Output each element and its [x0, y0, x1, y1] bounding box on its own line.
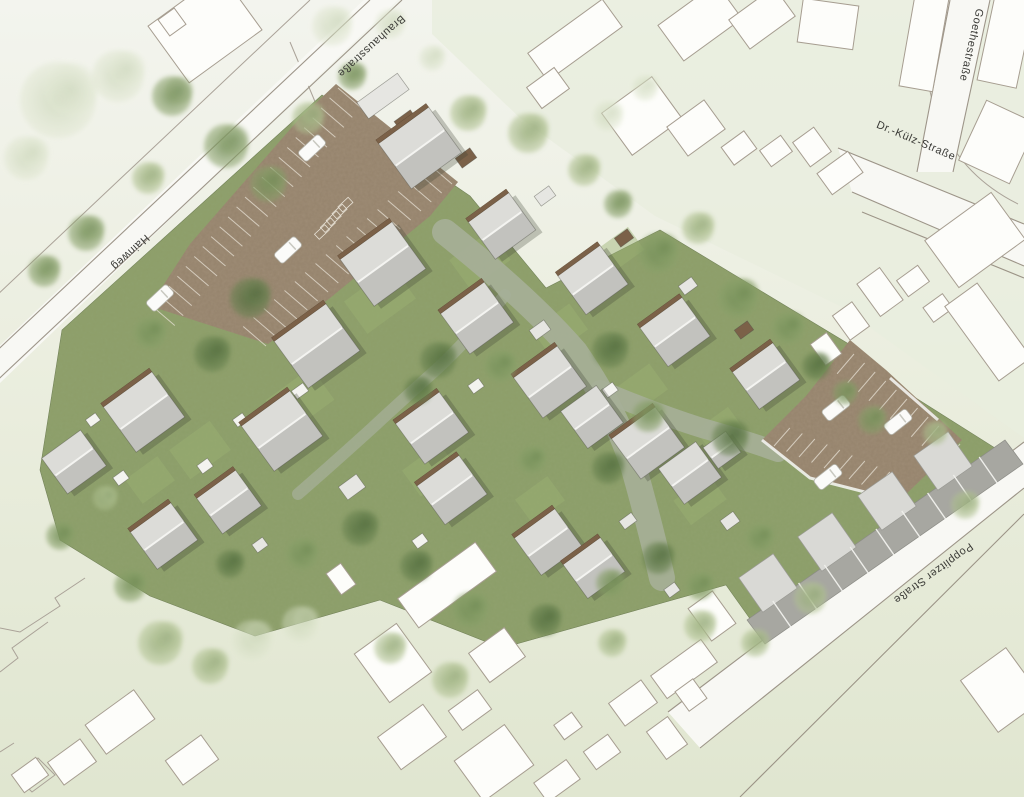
tree-canopy — [494, 350, 516, 372]
tree-canopy — [38, 255, 60, 277]
tree-canopy — [354, 510, 379, 535]
tree-canopy — [142, 162, 164, 184]
tree-canopy — [640, 75, 658, 93]
tree-canopy — [218, 124, 249, 155]
tree-canopy — [539, 604, 561, 626]
tree-canopy — [604, 332, 629, 357]
tree-canopy — [165, 76, 193, 104]
tree-canopy — [724, 420, 749, 445]
tree-canopy — [931, 421, 948, 438]
tree-canopy — [692, 212, 714, 234]
tree-canopy — [605, 569, 625, 589]
tree-canopy — [245, 620, 273, 648]
tree-canopy — [731, 278, 759, 306]
tree-canopy — [294, 606, 319, 631]
tree-canopy — [782, 312, 804, 334]
tree-canopy — [602, 452, 624, 474]
tree-canopy — [607, 629, 627, 649]
tree-canopy — [243, 278, 271, 306]
tree-canopy — [603, 101, 624, 122]
tree-canopy — [578, 154, 600, 176]
tree-canopy — [695, 572, 715, 592]
tree-canopy — [18, 136, 49, 167]
tree-canopy — [652, 542, 674, 564]
site-plan-canvas — [0, 0, 1024, 797]
tree-canopy — [410, 550, 432, 572]
tree-canopy — [206, 336, 231, 361]
tree-canopy — [867, 406, 887, 426]
tree-canopy — [755, 524, 775, 544]
tree-canopy — [527, 446, 547, 466]
tree-canopy — [444, 662, 469, 687]
tree-canopy — [296, 538, 318, 560]
tree-canopy — [841, 381, 858, 398]
tree-canopy — [960, 491, 980, 511]
tree-canopy — [432, 342, 457, 367]
tree-canopy — [204, 648, 229, 673]
tree-canopy — [750, 629, 770, 649]
tree-canopy — [109, 51, 145, 87]
tree-canopy — [804, 582, 826, 604]
tree-canopy — [225, 550, 245, 570]
tree-canopy — [325, 6, 353, 34]
tree-canopy — [152, 621, 183, 652]
tree-canopy — [302, 102, 324, 124]
tree-canopy — [144, 317, 166, 339]
tree-canopy — [427, 45, 445, 63]
tree-canopy — [521, 113, 549, 141]
tree-canopy — [613, 190, 633, 210]
tree-canopy — [45, 63, 98, 116]
tree-canopy — [55, 522, 75, 542]
tree-canopy — [642, 400, 664, 422]
tree-canopy — [651, 233, 679, 261]
tree-canopy — [464, 592, 489, 617]
site-plan: Brauhausstraße Hainweg Goethestraße Dr.-… — [0, 0, 1024, 797]
context-building — [797, 0, 859, 50]
tree-canopy — [101, 486, 118, 503]
tree-canopy — [811, 352, 831, 372]
tree-canopy — [262, 166, 287, 191]
tree-canopy — [384, 632, 406, 654]
tree-canopy — [462, 95, 487, 120]
tree-canopy — [80, 215, 105, 240]
tree-canopy — [124, 570, 146, 592]
tree-canopy — [694, 610, 716, 632]
tree-canopy — [413, 376, 433, 396]
